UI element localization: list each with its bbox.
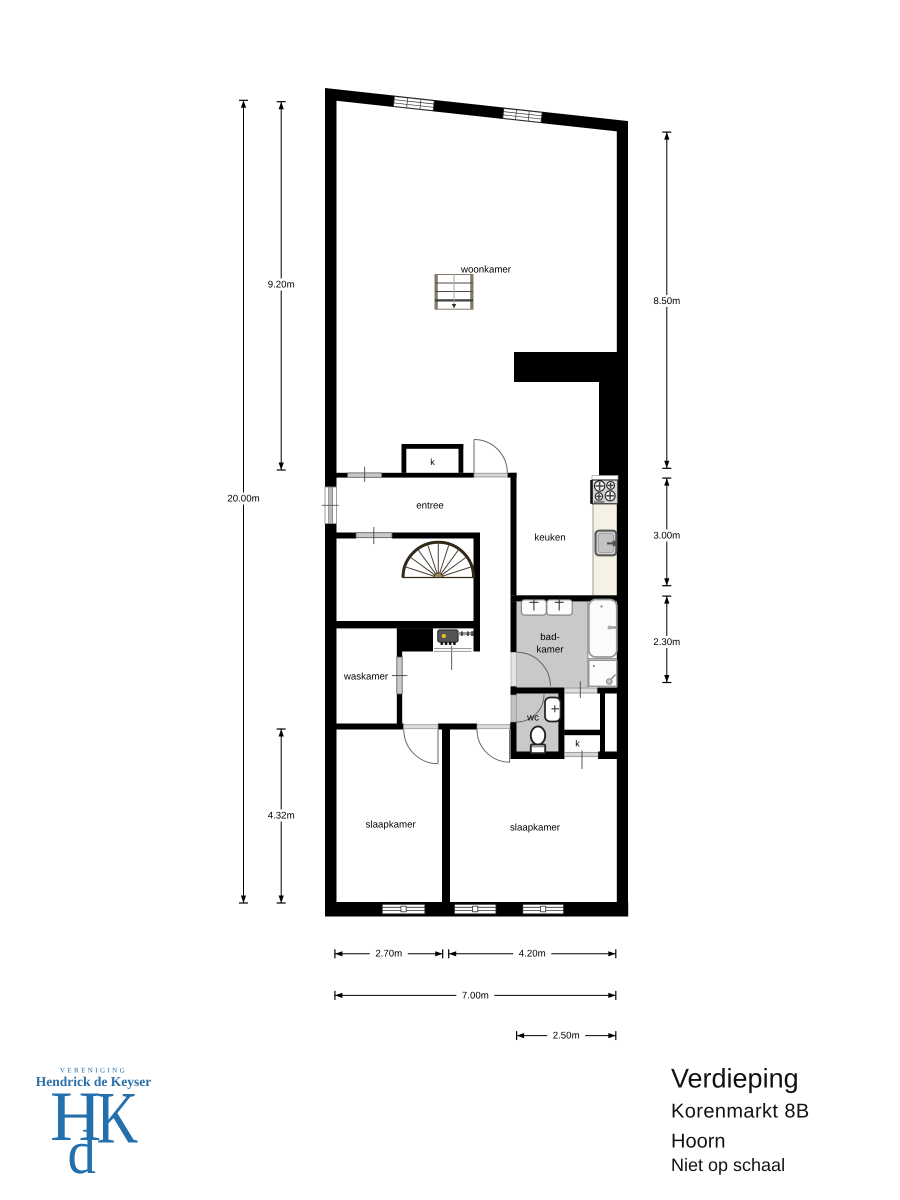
svg-text:Verdieping: Verdieping	[671, 1064, 799, 1094]
svg-text:k: k	[575, 739, 580, 749]
svg-text:9.20m: 9.20m	[268, 280, 295, 291]
svg-text:k: k	[430, 457, 435, 467]
svg-text:waskamer: waskamer	[343, 671, 389, 682]
svg-text:7.00m: 7.00m	[462, 991, 489, 1002]
svg-text:slaapkamer: slaapkamer	[366, 820, 417, 831]
svg-text:8.50m: 8.50m	[653, 296, 680, 307]
svg-text:4.20m: 4.20m	[519, 949, 546, 960]
svg-text:2.70m: 2.70m	[375, 949, 402, 960]
svg-text:2.30m: 2.30m	[653, 637, 680, 648]
svg-text:woonkamer: woonkamer	[460, 265, 512, 276]
svg-text:Hoorn: Hoorn	[671, 1131, 725, 1153]
svg-text:wc: wc	[526, 713, 539, 724]
svg-text:kamer: kamer	[537, 644, 565, 655]
svg-text:bad-: bad-	[540, 632, 559, 643]
svg-text:3.00m: 3.00m	[653, 531, 680, 542]
svg-text:keuken: keuken	[534, 533, 565, 544]
svg-text:Niet op schaal: Niet op schaal	[671, 1155, 785, 1175]
svg-text:entree: entree	[416, 501, 443, 512]
svg-text:d: d	[68, 1118, 96, 1187]
svg-text:4.32m: 4.32m	[268, 811, 295, 822]
svg-text:K: K	[97, 1078, 139, 1160]
svg-text:20.00m: 20.00m	[227, 494, 259, 505]
svg-text:Korenmarkt 8B: Korenmarkt 8B	[671, 1101, 810, 1123]
svg-text:2.50m: 2.50m	[553, 1031, 580, 1042]
svg-text:slaapkamer: slaapkamer	[510, 823, 561, 834]
